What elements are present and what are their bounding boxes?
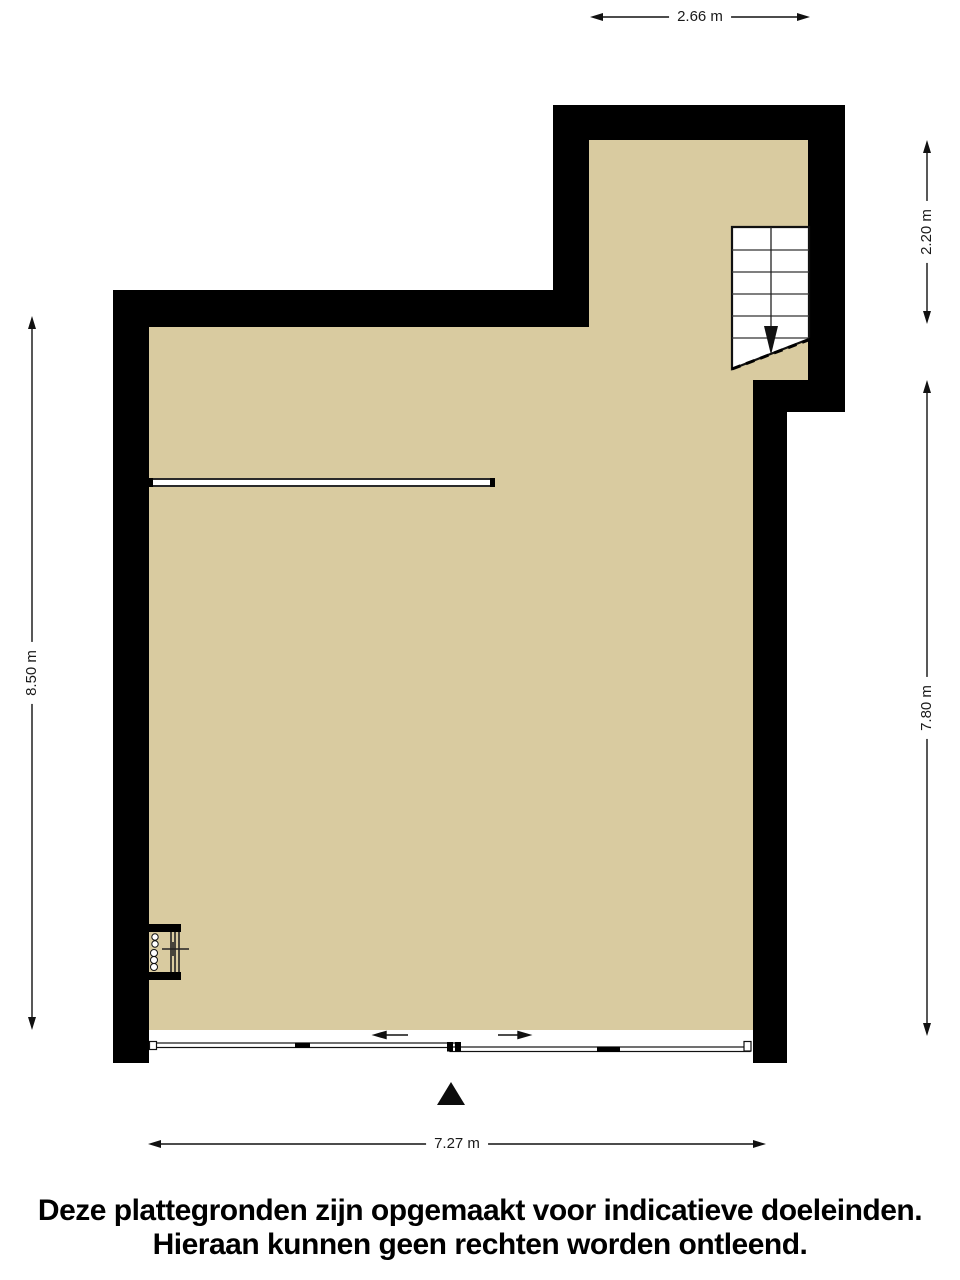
north-triangle-icon	[437, 1082, 465, 1105]
dimension-bottom: 7.27 m	[146, 1135, 768, 1153]
arrow-up-icon	[923, 380, 931, 393]
wall-extension-top	[553, 105, 845, 140]
dimension-right-upper: 2.20 m	[917, 138, 937, 326]
arrow-right-icon	[753, 1140, 766, 1148]
arrow-up-icon	[923, 140, 931, 153]
dimension-left: 8.50 m	[22, 314, 42, 1032]
door-slide-right-icon	[518, 1032, 530, 1039]
dimension-label: 2.66 m	[669, 8, 731, 26]
arrow-left-icon	[590, 13, 603, 21]
wall-main-top	[113, 290, 589, 327]
door-junction	[447, 1042, 453, 1052]
door-end-cap-left	[150, 1042, 157, 1050]
partition-wall	[148, 478, 495, 487]
wall-main-right	[753, 380, 787, 1063]
dimension-right-lower: 7.80 m	[917, 378, 937, 1038]
sliding-door	[149, 1028, 753, 1058]
disclaimer-line1: Deze plattegronden zijn opgemaakt voor i…	[0, 1194, 960, 1228]
partition-end-cap	[490, 478, 495, 487]
disclaimer: Deze plattegronden zijn opgemaakt voor i…	[0, 1194, 960, 1262]
door-end-cap-right	[744, 1042, 751, 1052]
arrow-up-icon	[28, 316, 36, 329]
staircase	[730, 225, 812, 373]
arrow-down-icon	[28, 1017, 36, 1030]
dimension-label: 7.80 m	[918, 677, 936, 739]
partition-end-cap	[148, 478, 153, 487]
dimension-label: 8.50 m	[23, 642, 41, 704]
arrow-down-icon	[923, 311, 931, 324]
arrow-right-icon	[797, 13, 810, 21]
wall-left	[113, 290, 149, 1063]
dimension-top: 2.66 m	[588, 8, 812, 26]
utility-fixture	[146, 920, 208, 984]
floor-plan-canvas: 2.66 m 2.20 m 8.50 m 7.80 m	[0, 0, 960, 1280]
door-slide-left-icon	[374, 1032, 386, 1039]
dimension-label: 2.20 m	[918, 201, 936, 263]
dimension-label: 7.27 m	[426, 1135, 488, 1153]
main-room-floor	[149, 327, 753, 1030]
disclaimer-line2: Hieraan kunnen geen rechten worden ontle…	[0, 1228, 960, 1262]
arrow-left-icon	[148, 1140, 161, 1148]
door-junction	[455, 1042, 461, 1052]
wall-extension-right	[808, 105, 845, 412]
arrow-down-icon	[923, 1023, 931, 1036]
